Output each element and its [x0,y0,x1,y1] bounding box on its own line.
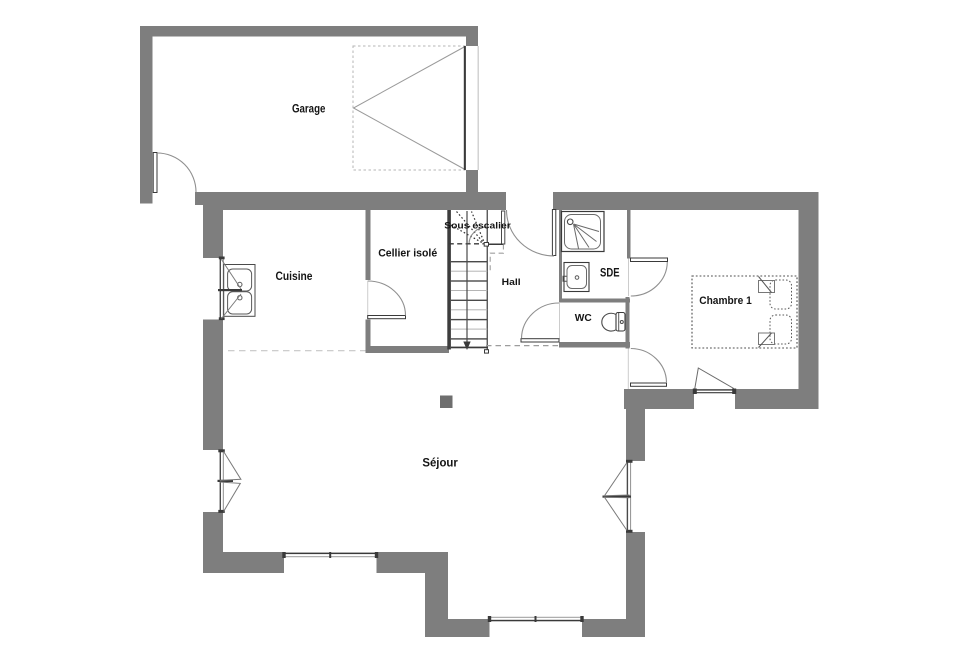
svg-text:Cellier isolé: Cellier isolé [378,247,437,259]
svg-text:Séjour: Séjour [422,458,458,470]
svg-text:SDE: SDE [600,268,620,280]
svg-text:Cuisine: Cuisine [276,271,313,283]
svg-text:Chambre 1: Chambre 1 [699,295,752,307]
svg-text:Sous escalier: Sous escalier [444,221,511,232]
svg-text:WC: WC [575,312,592,324]
svg-text:Garage: Garage [292,103,326,115]
svg-text:Hall: Hall [502,277,521,288]
